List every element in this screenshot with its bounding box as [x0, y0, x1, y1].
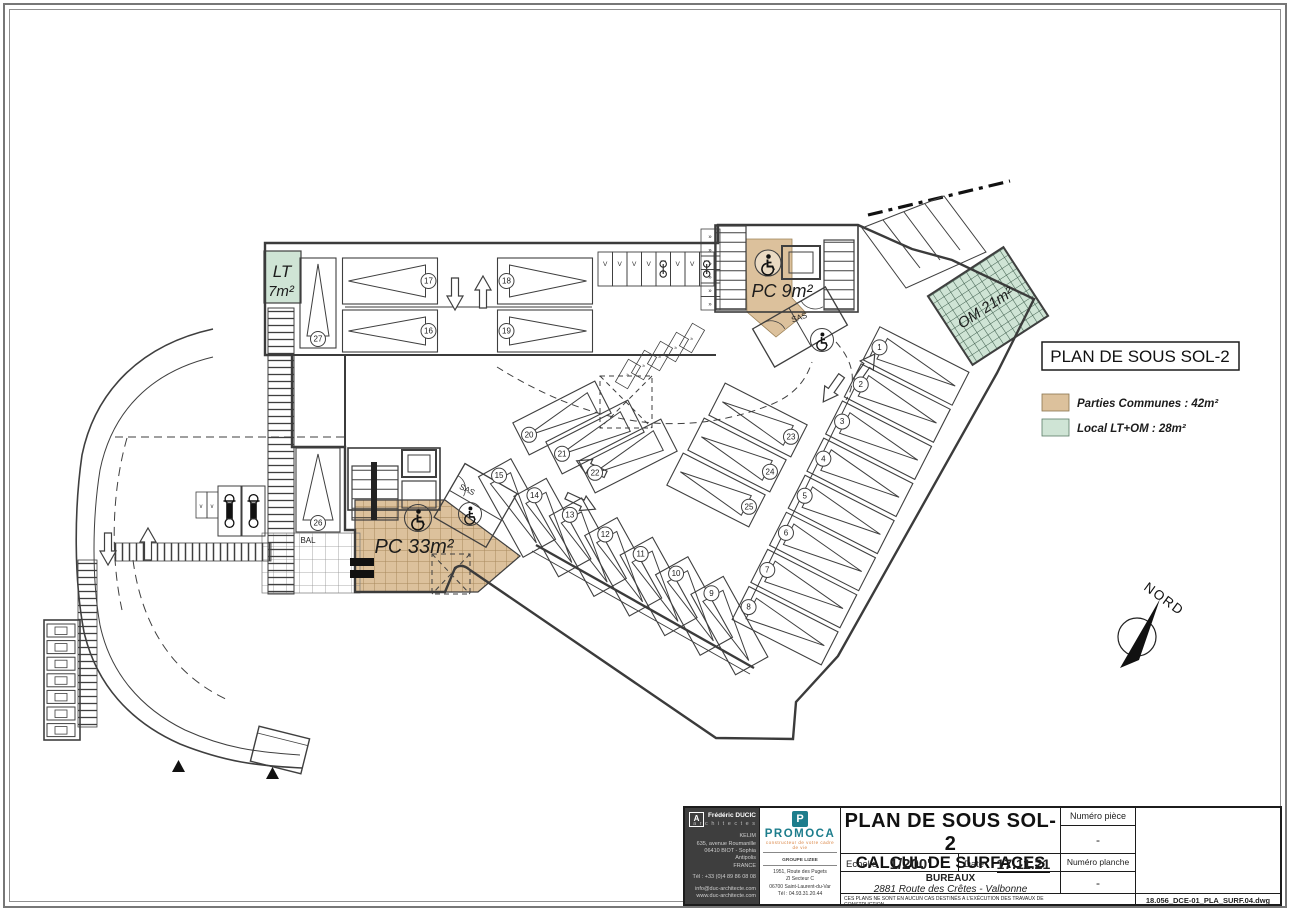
architect-addr: FRANCE [687, 863, 756, 870]
parking-stall [691, 576, 768, 674]
storage-cell-mark: » [708, 302, 712, 308]
disclaimer: CES PLANS NE SONT EN AUCUN CAS DESTINÉS … [840, 894, 1060, 904]
storage-cell-mark: » [708, 262, 712, 268]
locker-cell [47, 690, 75, 703]
storage-cell-mark: » [708, 248, 712, 254]
builder-address: 1951, Route des Pugets ZI Secteur C 0670… [760, 869, 840, 898]
stall-number: 1 [877, 343, 882, 352]
architect-addr: 635, avenue Roumanille [687, 841, 756, 848]
project-type: BUREAUX [841, 873, 1060, 884]
label-lt: LT [273, 262, 293, 281]
parking-stall [585, 518, 662, 616]
bike-cell-label: V [603, 261, 608, 268]
legend: PLAN DE SOUS SOL-2 Parties Communes : 42… [1042, 342, 1239, 436]
title-block: A Frédéric DUCIC a r c h i t e c t e s K… [683, 806, 1282, 906]
drawing-title-line1: PLAN DE SOUS SOL-2 [841, 810, 1060, 856]
bike-icon [660, 261, 666, 277]
date-label: Date [964, 859, 984, 870]
stall-number: 21 [558, 449, 567, 458]
stall-number: 7 [765, 566, 770, 575]
north-label: NORD [1141, 579, 1187, 618]
slope-triangle-1 [172, 760, 185, 772]
locker-cell-inner [55, 727, 67, 735]
legend-swatch-local [1042, 419, 1069, 436]
storage-cell-mark: » [708, 275, 712, 281]
locker-cell-inner [55, 677, 67, 685]
north-needle [1120, 599, 1160, 668]
parking-stall [788, 475, 894, 553]
stall-number: 24 [766, 467, 775, 476]
locker-cell [47, 657, 75, 670]
stall-number: 16 [424, 327, 433, 336]
exterior-stair-strip [268, 308, 294, 594]
empty-cell [1135, 808, 1280, 894]
architect-web: www.duc-architecte.com [687, 893, 756, 900]
svg-text:»: » [672, 345, 678, 352]
drawing-title-cell: PLAN DE SOUS SOL-2 CALCUL DE SURFACES [840, 808, 1060, 854]
label-bal: BAL [300, 536, 316, 545]
motorcycle-icon [224, 495, 236, 528]
sheet-number-label: Numéro planche [1060, 854, 1135, 872]
stall-number: 8 [746, 603, 751, 612]
stall-number: 6 [784, 528, 789, 537]
stall-number: 10 [672, 569, 681, 578]
stall-number: 2 [859, 380, 864, 389]
label-pc33: PC 33m² [375, 536, 455, 558]
bike-cell-label: V [690, 261, 695, 268]
parking-stall [513, 381, 611, 455]
parking-stall [549, 498, 626, 596]
stall-number: 15 [495, 471, 504, 480]
builder-addr-line: Tél : 04.93.31.20.44 [760, 891, 840, 898]
builder-logo-icon: P [792, 811, 808, 827]
architect-addr: KELIM [687, 833, 756, 840]
parking-stall [620, 537, 697, 635]
bike-cell [685, 252, 700, 286]
parking-stall [751, 549, 857, 627]
sheet-number-value: - [1060, 872, 1135, 894]
legend-label-local: Local LT+OM : 28m² [1077, 423, 1187, 435]
legend-swatch-commons [1042, 394, 1069, 411]
builder-addr-line: 1951, Route des Pugets [760, 869, 840, 876]
storage-cell-mark: » [708, 289, 712, 295]
svg-text:v: v [211, 504, 214, 510]
architect-tel: Tél : +33 (0)4 89 86 08 08 [687, 874, 756, 881]
motorcycle-icon [248, 495, 260, 528]
piece-number-value: - [1060, 826, 1135, 854]
drawing-sheet: 1718161927262021222324251234567815141312… [0, 0, 1290, 911]
architect-panel: A Frédéric DUCIC a r c h i t e c t e s K… [685, 808, 759, 904]
stall-number: 23 [787, 432, 796, 441]
stall-number: 4 [821, 454, 826, 463]
bike-cell-label: V [647, 261, 652, 268]
stall-number: 9 [709, 589, 714, 598]
scale-value: 1/200' [890, 856, 931, 873]
architect-email: info@duc-architecte.com [687, 886, 756, 893]
architect-addr: 06410 BIOT - Sophia Antipolis [687, 848, 756, 863]
bike-cell-label: V [676, 261, 681, 268]
label-sas-mid: SAS [458, 482, 476, 497]
stall-number: 25 [745, 502, 754, 511]
builder-panel: P PROMOCA constructeur de votre cadre de… [759, 808, 840, 904]
stall-number: 22 [591, 468, 600, 477]
bike-cell [598, 252, 613, 286]
file-name: 18.056_DCE-01_PLA_SURF.04.dwg [1135, 894, 1280, 904]
stall-number: 5 [802, 491, 807, 500]
bike-cell-label: V [632, 261, 637, 268]
slope-triangle-2 [266, 767, 279, 779]
builder-addr-line: 06700 Saint-Laurent-du-Var [760, 884, 840, 891]
locker-cell-inner [55, 710, 67, 718]
project-cell: BUREAUX 2881 Route des Crêtes - Valbonne [840, 872, 1060, 894]
stall-number: 18 [502, 277, 511, 286]
svg-text:»: » [688, 336, 694, 343]
locker-cell-inner [55, 627, 67, 635]
lockers [47, 624, 75, 737]
builder-name: PROMOCA [760, 828, 840, 840]
north-arrow: NORD [1118, 579, 1187, 668]
locker-cell-inner [55, 693, 67, 701]
parking-stall [807, 438, 913, 516]
date-cell: Date 17.11.21 [958, 854, 1060, 872]
parking-stall [826, 401, 932, 479]
svg-text:v: v [200, 504, 203, 510]
stall-number: 13 [565, 510, 574, 519]
parking-stall [546, 400, 644, 474]
stall-number: 12 [601, 530, 610, 539]
stall-number: 26 [314, 519, 323, 528]
label-pc9: PC 9m² [751, 281, 813, 301]
svg-text:»: » [640, 363, 646, 370]
label-lt-area: 7m² [268, 283, 295, 300]
wheelchair-icon [817, 333, 827, 351]
stall-number: 27 [314, 335, 323, 344]
moto-parking: v v [196, 486, 265, 536]
bike-cell [613, 252, 628, 286]
legend-label-commons: Parties Communes : 42m² [1077, 398, 1219, 410]
parking-stall [732, 587, 838, 665]
scale-cell: Echelle 1/200' [840, 854, 958, 872]
bike-cell [627, 252, 642, 286]
builder-group: GROUPE LIZEE [763, 858, 837, 866]
parking-stall [579, 419, 677, 493]
bike-cell [642, 252, 657, 286]
stall-number: 19 [502, 327, 511, 336]
builder-tagline: constructeur de votre cadre de vie [763, 840, 837, 853]
road-dashed-centerline-1 [114, 438, 127, 610]
locker-cell-inner [55, 644, 67, 652]
storage-cell-mark: » [708, 235, 712, 241]
bike-cell [671, 252, 686, 286]
stall-number: 14 [530, 491, 539, 500]
locker-cell [47, 674, 75, 687]
locker-cell-inner [55, 660, 67, 668]
hatched-walkway [115, 543, 271, 561]
floor-plan-canvas: 1718161927262021222324251234567815141312… [0, 0, 1290, 911]
stall-number: 20 [525, 430, 534, 439]
hatched-retaining-wall [78, 560, 97, 727]
date-value: 17.11.21 [997, 856, 1051, 873]
scale-label: Echelle [846, 859, 877, 870]
parking-stall [656, 557, 733, 655]
piece-number-label: Numéro pièce [1060, 808, 1135, 826]
builder-addr-line: ZI Secteur C [760, 876, 840, 883]
bike-cell-label: V [618, 261, 623, 268]
svg-text:»: » [624, 372, 630, 379]
road-dashed-centerline-2 [133, 560, 228, 700]
locker-cell [47, 641, 75, 654]
sheet-title: PLAN DE SOUS SOL-2 [1050, 347, 1230, 366]
locker-cell [47, 724, 75, 737]
stall-number: 17 [424, 277, 433, 286]
stall-number: 11 [637, 550, 646, 559]
storage-cell: » [679, 323, 704, 353]
locker-cell [47, 707, 75, 720]
parking-stall [770, 512, 876, 590]
stall-number: 3 [840, 417, 845, 426]
locker-cell [47, 624, 75, 637]
parking-stall [863, 327, 969, 405]
architect-logo-icon: A [689, 812, 704, 827]
